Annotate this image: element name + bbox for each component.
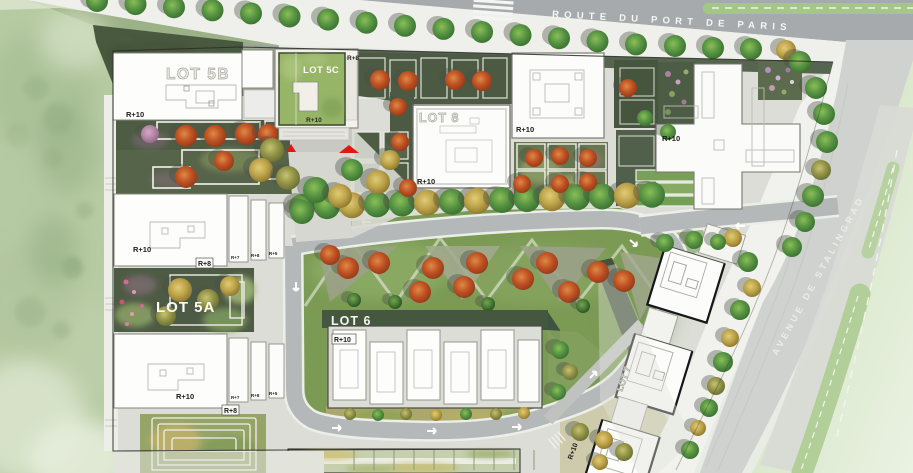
svg-text:R+8: R+8 — [224, 408, 237, 415]
svg-text:R+10: R+10 — [417, 177, 435, 186]
svg-text:R+10: R+10 — [176, 392, 194, 401]
svg-text:R+5: R+5 — [269, 391, 278, 396]
svg-text:LOT 6: LOT 6 — [331, 314, 371, 328]
svg-text:LOT 5A: LOT 5A — [156, 299, 215, 316]
svg-text:LOT 5B: LOT 5B — [166, 66, 230, 83]
svg-text:R+7: R+7 — [231, 395, 240, 400]
svg-text:R+7: R+7 — [231, 255, 240, 260]
svg-text:R+10: R+10 — [126, 110, 144, 119]
svg-text:R+10: R+10 — [334, 337, 351, 344]
svg-text:R+10: R+10 — [516, 125, 534, 134]
svg-text:R+10: R+10 — [133, 245, 151, 254]
svg-text:R+10: R+10 — [662, 134, 680, 143]
svg-text:LOT 8: LOT 8 — [419, 111, 459, 125]
svg-text:R+8: R+8 — [251, 253, 260, 258]
svg-text:LOT 5C: LOT 5C — [303, 65, 339, 76]
svg-text:R+8: R+8 — [198, 261, 211, 268]
svg-text:R+5: R+5 — [269, 251, 278, 256]
svg-text:R+10: R+10 — [306, 117, 322, 124]
svg-text:R+8: R+8 — [251, 393, 260, 398]
svg-text:R+8: R+8 — [347, 55, 359, 62]
